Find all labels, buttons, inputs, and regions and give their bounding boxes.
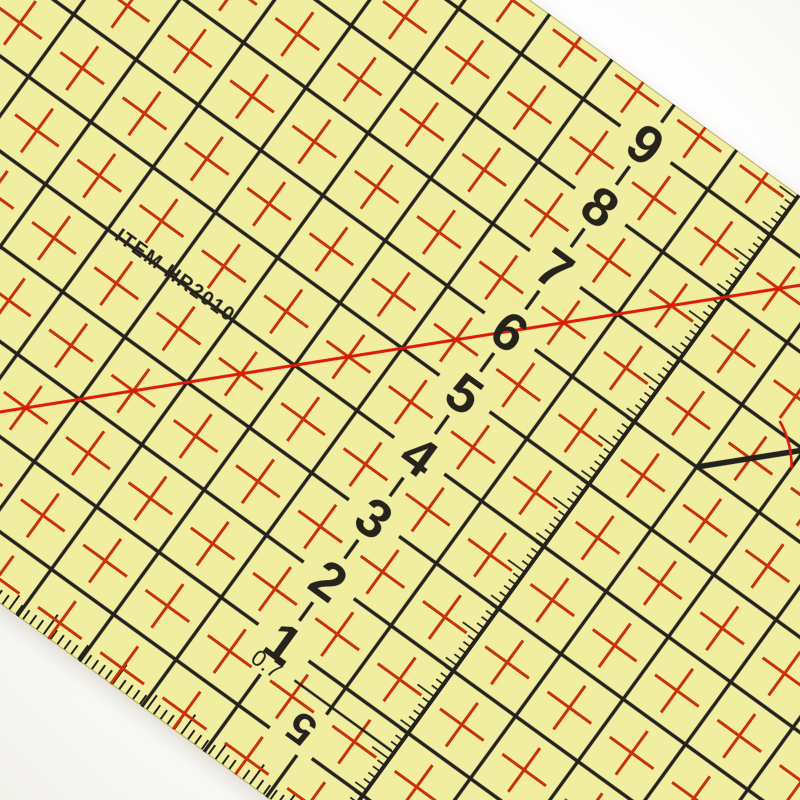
ruler-face: 123456789 ITEM HR2010 0.7 5 <box>0 0 800 800</box>
photo-scene: 123456789 ITEM HR2010 0.7 5 <box>0 0 800 800</box>
quilting-ruler: 123456789 ITEM HR2010 0.7 5 <box>0 0 800 800</box>
